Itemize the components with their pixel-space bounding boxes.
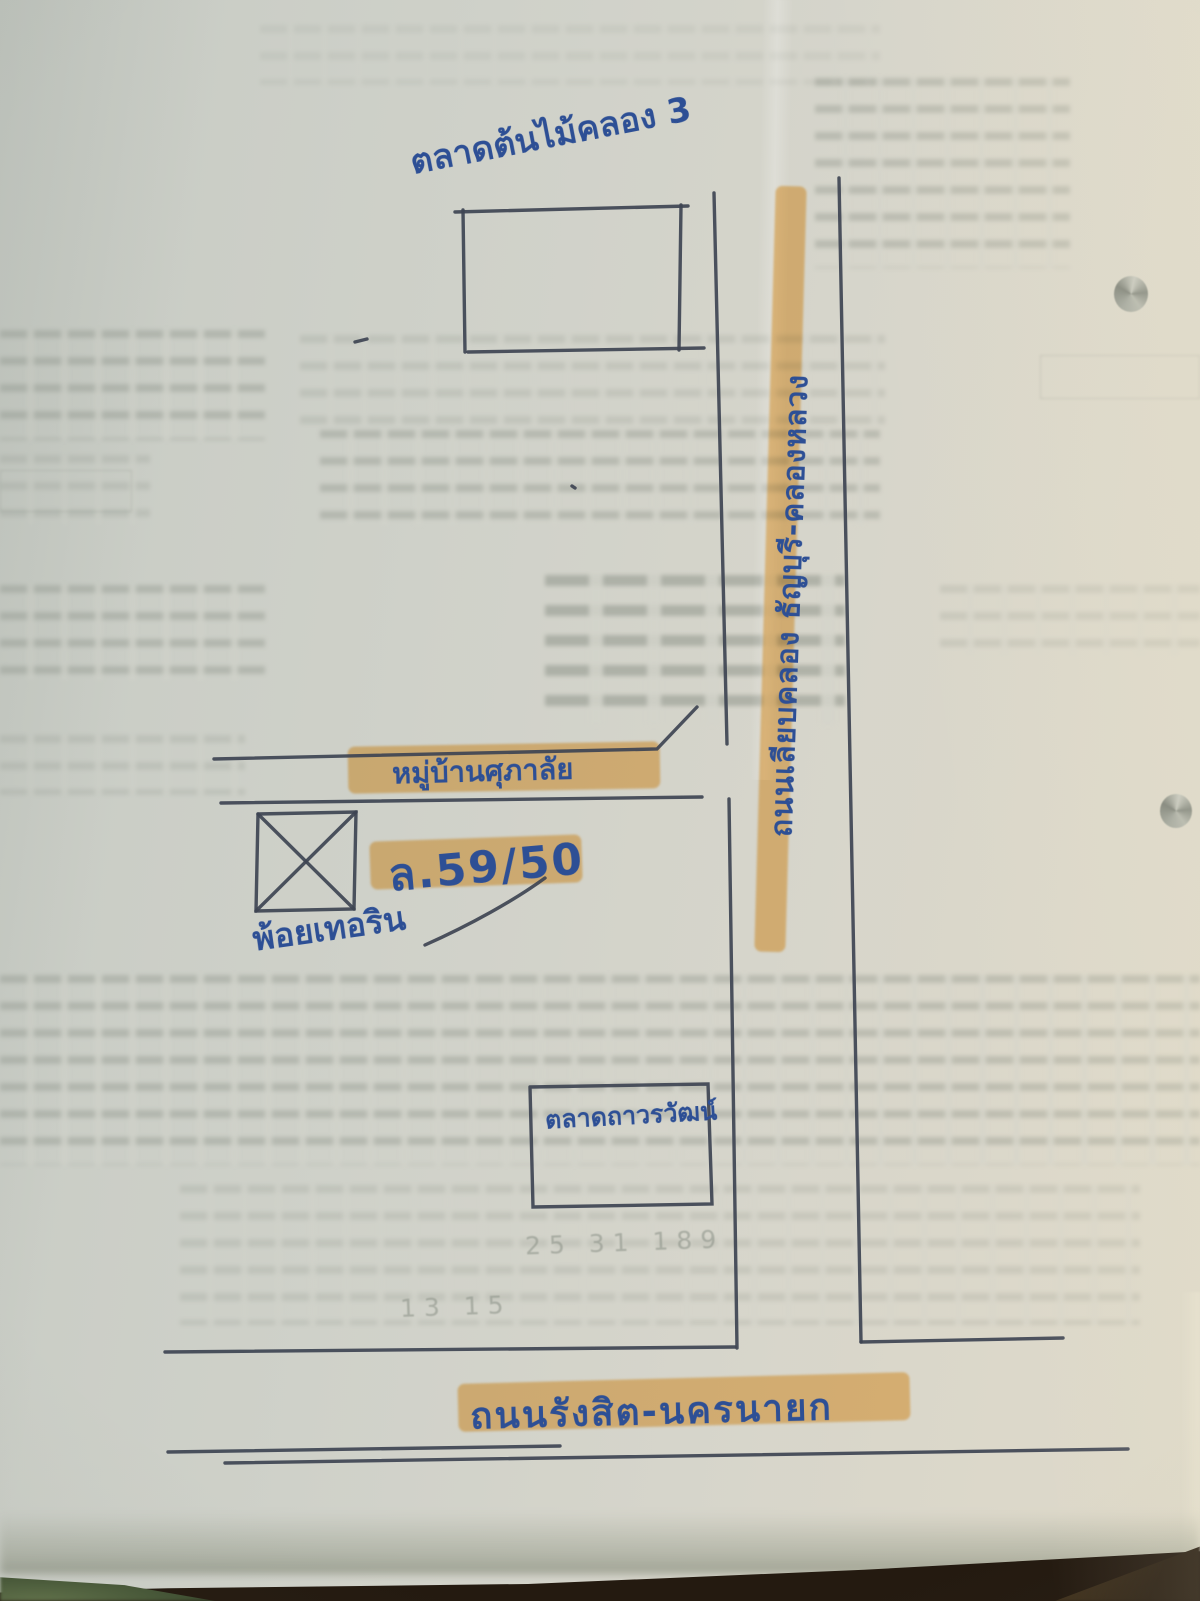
top-market-top-edge (455, 206, 688, 212)
soi-lower-line (221, 797, 702, 803)
bottom-road-top-line-left (165, 1347, 735, 1352)
paper-fastener-mark (1114, 276, 1148, 312)
bottom-road-label: ถนนรังสิต-นครนายก (469, 1377, 833, 1445)
top-market-left-edge (463, 210, 465, 352)
small-dot-mark (572, 486, 575, 488)
bottom-road-lower-line-long (225, 1449, 1128, 1463)
paper-fastener-mark (1160, 794, 1192, 828)
vertical-road-left-line-upper (714, 193, 727, 744)
photo-of-hand-drawn-map: 25 31 189 13 15 ตลาดต้นไม้คลอง 3 ถนนเลีย… (0, 0, 1200, 1601)
vertical-road-left-line-lower (729, 799, 737, 1348)
vertical-road-right-line (839, 178, 861, 1342)
top-market-right-edge (679, 205, 681, 350)
bottom-road-top-line-right (861, 1338, 1063, 1342)
soi-label: หมู่บ้านศุภาลัย (391, 746, 573, 797)
bottom-road-lower-line-short (168, 1446, 560, 1452)
top-market-bottom-edge (468, 348, 704, 352)
pen-line-layer (0, 0, 1200, 1601)
small-tick-mark (355, 339, 367, 342)
